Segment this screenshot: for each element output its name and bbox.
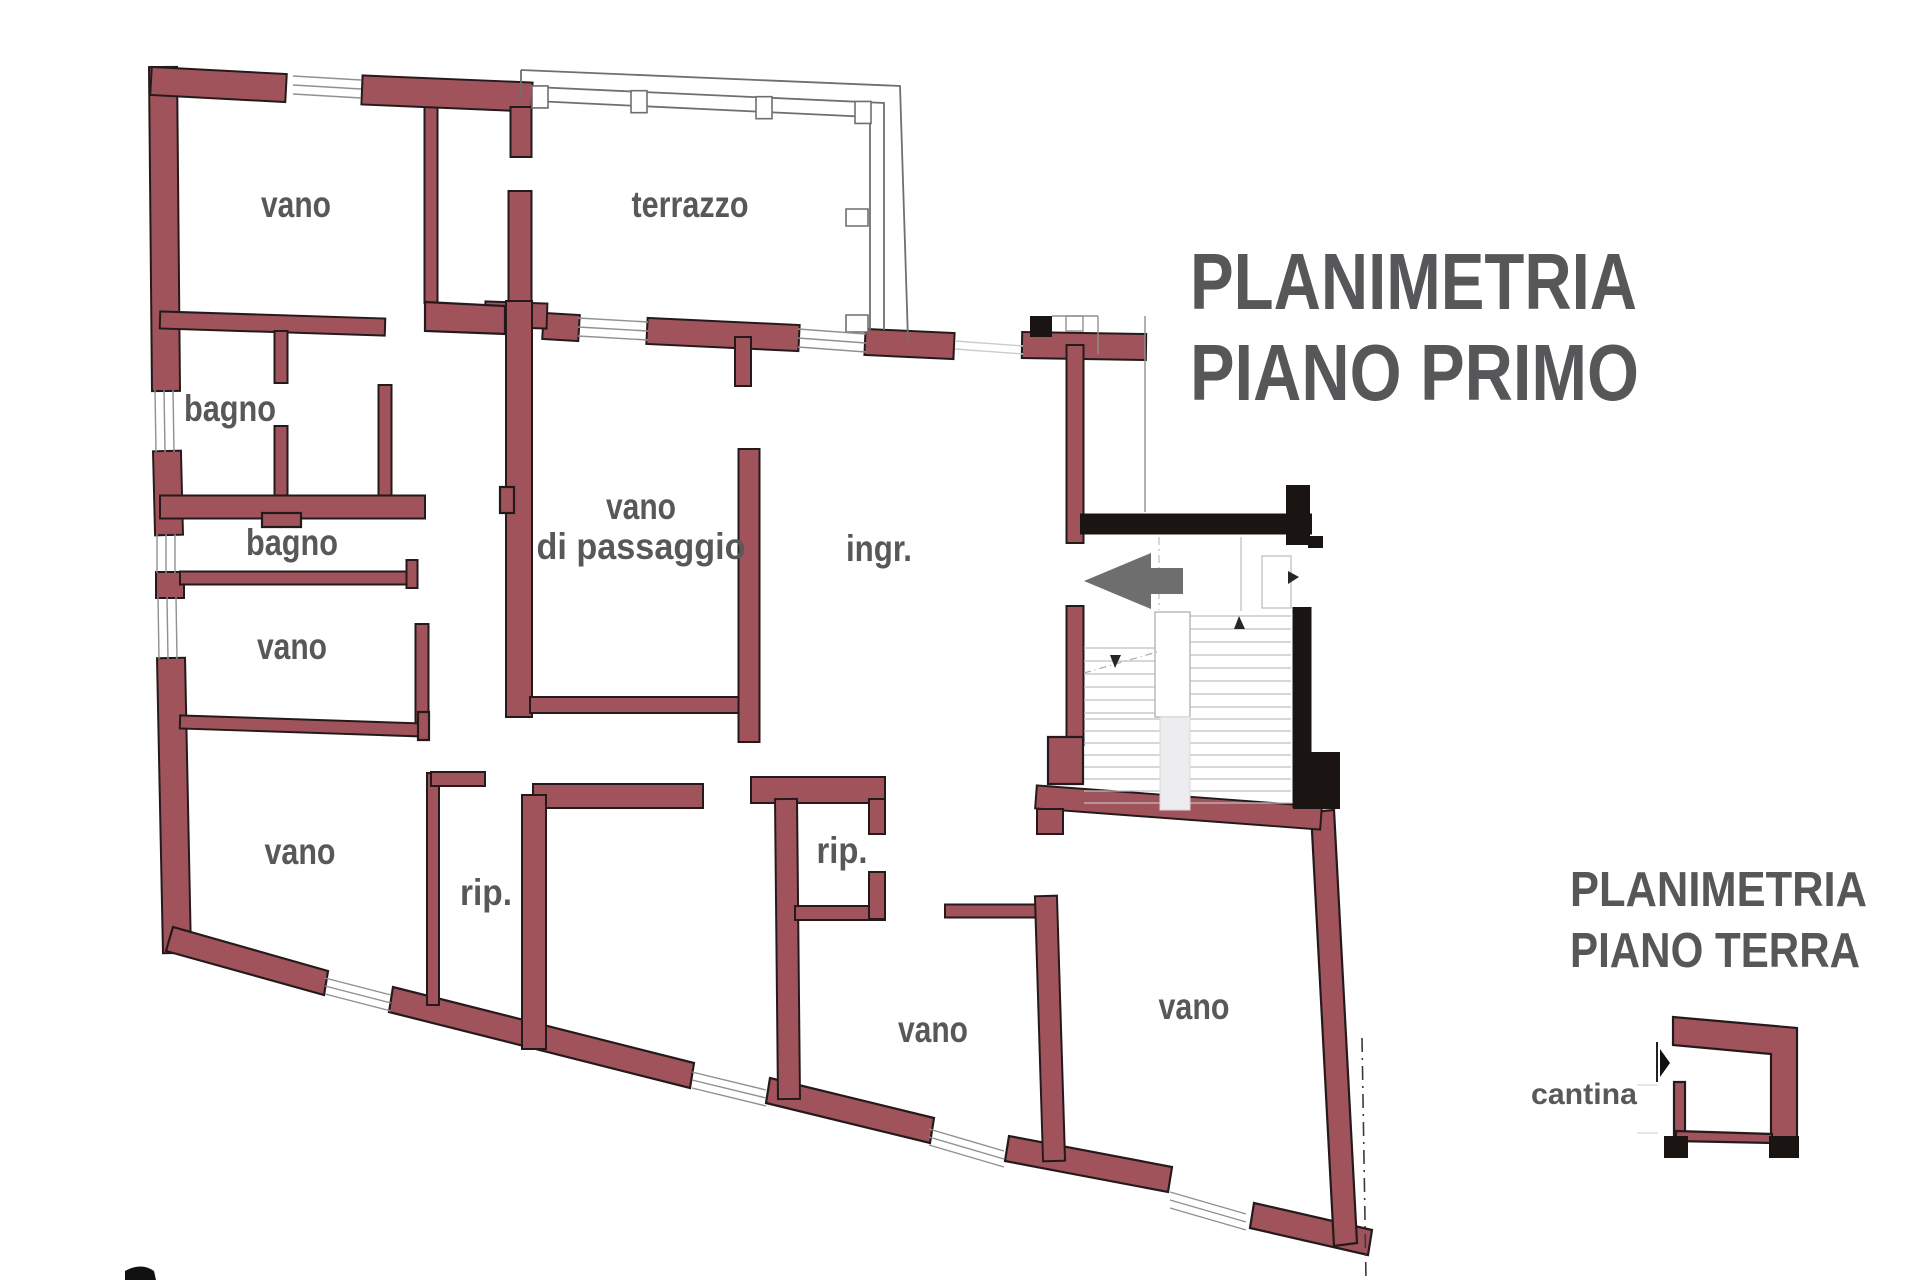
svg-text:vano: vano: [265, 831, 336, 872]
svg-text:rip.: rip.: [817, 830, 868, 871]
svg-text:vano: vano: [898, 1009, 968, 1050]
svg-text:ingr.: ingr.: [846, 528, 912, 569]
svg-text:cantina: cantina: [1531, 1078, 1637, 1111]
svg-text:PLANIMETRIA: PLANIMETRIA: [1570, 863, 1867, 917]
svg-text:vano: vano: [261, 184, 331, 225]
svg-text:bagno: bagno: [184, 388, 276, 429]
svg-text:PLANIMETRIA: PLANIMETRIA: [1190, 237, 1637, 326]
svg-text:bagno: bagno: [246, 522, 338, 563]
svg-text:PIANO PRIMO: PIANO PRIMO: [1190, 328, 1639, 417]
svg-text:vano: vano: [1159, 986, 1230, 1027]
svg-text:terrazzo: terrazzo: [632, 184, 749, 225]
svg-text:vano: vano: [257, 626, 327, 667]
svg-text:di passaggio: di passaggio: [537, 526, 746, 567]
svg-text:PIANO TERRA: PIANO TERRA: [1570, 924, 1860, 978]
svg-text:vano: vano: [606, 486, 676, 527]
svg-text:rip.: rip.: [460, 872, 512, 913]
